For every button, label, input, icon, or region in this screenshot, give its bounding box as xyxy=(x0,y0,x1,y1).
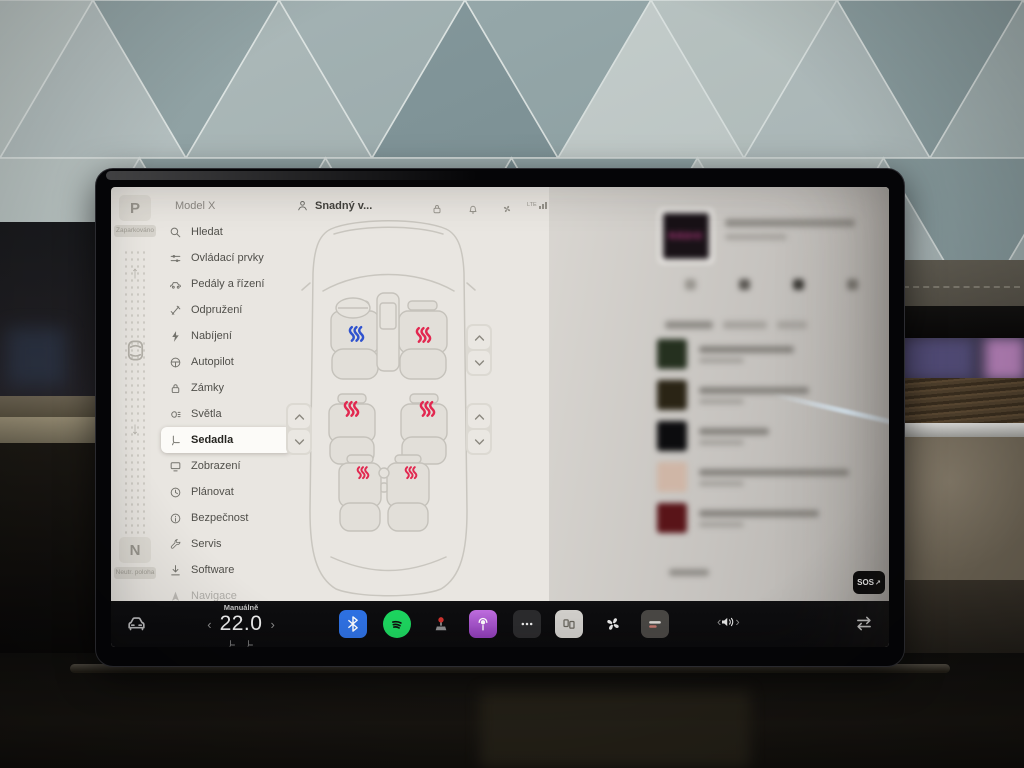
sidebar-item-label: Autopilot xyxy=(191,356,234,368)
software-icon xyxy=(169,564,182,577)
media-item-thumbnail xyxy=(657,421,687,451)
sidebar-item-label: Zobrazení xyxy=(191,460,241,472)
sos-arrow-icon: ↗ xyxy=(875,579,881,587)
media-player-content: RÁDIO xyxy=(549,187,889,601)
sidebar-item-label: Hledat xyxy=(191,226,223,238)
sidebar-item-zamky[interactable]: Zámky xyxy=(161,375,291,401)
seat-fold-control-middle-right xyxy=(466,403,492,455)
media-list-item[interactable] xyxy=(657,503,882,533)
media-list-item[interactable] xyxy=(657,421,882,451)
fan-app-icon[interactable] xyxy=(599,610,627,638)
seat-heater-mini-icon[interactable] xyxy=(245,635,255,644)
suspension-icon xyxy=(169,304,182,317)
car-top-icon xyxy=(124,329,147,371)
seat-up-button[interactable] xyxy=(468,326,490,349)
seat-heater-middle-right[interactable] xyxy=(416,396,438,418)
album-art[interactable]: RÁDIO xyxy=(659,209,713,263)
display-icon xyxy=(169,460,182,473)
lte-label: LTE xyxy=(527,202,537,208)
page-title: Model X xyxy=(175,200,215,212)
media-control-button[interactable] xyxy=(739,279,750,290)
sidebar-item-software[interactable]: Software xyxy=(161,557,291,583)
scene: P Zaparkováno ↑ ↓ N Neutr. poloha Model … xyxy=(0,0,1024,768)
search-icon xyxy=(169,226,182,239)
media-control-button[interactable] xyxy=(685,279,696,290)
sidebar-item-label: Plánovat xyxy=(191,486,234,498)
sidebar-item-sedadla[interactable]: Sedadla xyxy=(161,427,291,453)
sidebar-item-odpruzeni[interactable]: Odpružení xyxy=(161,297,291,323)
arcade-app-icon[interactable] xyxy=(427,610,455,638)
sidebar-item-label: Zámky xyxy=(191,382,224,394)
seat-heater-rear-left[interactable] xyxy=(352,460,374,482)
settings-menu: Hledat Ovládací prvky Pedály a řízení Od… xyxy=(161,219,291,609)
car-outline xyxy=(301,211,476,606)
media-item-thumbnail xyxy=(657,462,687,492)
seat-heater-front-right[interactable] xyxy=(412,322,434,344)
seat-heater-front-left[interactable] xyxy=(345,321,367,343)
center-console xyxy=(480,690,750,768)
seat-up-button[interactable] xyxy=(288,405,310,428)
track-subtitle xyxy=(725,234,787,240)
lock-icon xyxy=(169,382,182,395)
touchscreen-display: P Zaparkováno ↑ ↓ N Neutr. poloha Model … xyxy=(111,187,889,647)
safety-icon xyxy=(169,512,182,525)
temperature-value: 22.0 xyxy=(220,612,263,636)
media-item-text xyxy=(699,510,882,527)
bluetooth-app-icon[interactable] xyxy=(339,610,367,638)
media-list-item[interactable] xyxy=(657,339,882,369)
sidebar-item-label: Servis xyxy=(191,538,222,550)
gear-park-caption: Zaparkováno xyxy=(114,225,156,237)
schedule-icon xyxy=(169,486,182,499)
sidebar-item-planovat[interactable]: Plánovat xyxy=(161,479,291,505)
media-item-thumbnail xyxy=(657,380,687,410)
seat-down-button[interactable] xyxy=(468,351,490,374)
temp-increase-chevron[interactable]: › xyxy=(270,617,274,632)
radio-app-icon[interactable] xyxy=(641,610,669,638)
sos-button[interactable]: SOS ↗ xyxy=(853,571,885,594)
theater-app-icon[interactable] xyxy=(555,610,583,638)
gear-park-indicator[interactable]: P xyxy=(119,195,151,221)
gear-neutral-caption: Neutr. poloha xyxy=(114,567,156,579)
signal-bars-icon xyxy=(539,202,547,209)
sos-label: SOS xyxy=(857,578,874,587)
podcasts-app-icon[interactable] xyxy=(469,610,497,638)
more-apps-icon[interactable] xyxy=(513,610,541,638)
sidebar-item-label: Ovládací prvky xyxy=(191,252,264,264)
fan-icon xyxy=(501,202,513,214)
lte-signal: LTE xyxy=(527,202,547,209)
driver-profile-label: Snadný v... xyxy=(315,200,372,212)
sidebar-item-servis[interactable]: Servis xyxy=(161,531,291,557)
gear-reverse-arrow-icon[interactable]: ↓ xyxy=(125,419,145,439)
media-control-button[interactable] xyxy=(847,279,858,290)
media-item-thumbnail xyxy=(657,503,687,533)
track-title xyxy=(725,219,855,227)
climate-temperature-control[interactable]: Manuálně ‹ 22.0 › xyxy=(189,603,293,644)
seat-diagram xyxy=(301,211,476,606)
media-footer-text xyxy=(669,569,709,576)
cabin-fan-status xyxy=(501,202,513,214)
dashboard-below-screen xyxy=(0,653,1024,768)
speaker-icon[interactable] xyxy=(717,613,739,631)
gear-drive-arrow-icon[interactable]: ↑ xyxy=(125,263,145,283)
sidebar-item-label: Sedadla xyxy=(191,434,233,446)
seat-fold-control-middle-left xyxy=(286,403,312,455)
service-icon xyxy=(169,538,182,551)
sidebar-item-autopilot[interactable]: Autopilot xyxy=(161,349,291,375)
media-player-panel: RÁDIO SOS ↗ xyxy=(549,187,889,601)
climate-mode-label: Manuálně xyxy=(189,603,293,612)
track-swap-icon[interactable] xyxy=(851,613,877,634)
sidebar-item-label: Software xyxy=(191,564,234,576)
charging-icon xyxy=(169,330,182,343)
tesla-center-screen: P Zaparkováno ↑ ↓ N Neutr. poloha Model … xyxy=(95,168,905,667)
seat-up-button[interactable] xyxy=(468,405,490,428)
sidebar-item-label: Světla xyxy=(191,408,222,420)
sidebar-item-bezpecnost[interactable]: Bezpečnost xyxy=(161,505,291,531)
pedals-icon xyxy=(169,278,182,291)
album-art-text: RÁDIO xyxy=(663,213,709,259)
sidebar-item-svetla[interactable]: Světla xyxy=(161,401,291,427)
media-tab[interactable] xyxy=(723,321,767,329)
media-track-list xyxy=(657,339,882,544)
sidebar-item-label: Bezpečnost xyxy=(191,512,248,524)
media-item-text xyxy=(699,469,882,486)
media-item-text xyxy=(699,346,882,363)
car-front-icon[interactable] xyxy=(123,613,150,635)
volume-control: ‹ › xyxy=(717,614,740,629)
steering-wheel-icon xyxy=(169,356,182,369)
bottom-launcher-bar: Manuálně ‹ 22.0 › xyxy=(111,601,889,647)
sidebar-item-label: Odpružení xyxy=(191,304,242,316)
media-list-item[interactable] xyxy=(657,462,882,492)
sidebar-item-nabijeni[interactable]: Nabíjení xyxy=(161,323,291,349)
car-interior-left-lower xyxy=(0,443,97,768)
sidebar-item-hledat[interactable]: Hledat xyxy=(161,219,291,245)
gear-neutral-indicator[interactable]: N xyxy=(119,537,151,563)
car-interior-right-lower xyxy=(899,580,1024,768)
seat-heater-rear-right[interactable] xyxy=(400,460,422,482)
spotify-app-icon[interactable] xyxy=(383,610,411,638)
seat-heater-mini-icon[interactable] xyxy=(227,635,237,644)
lights-icon xyxy=(169,408,182,421)
media-item-thumbnail xyxy=(657,339,687,369)
seat-down-button[interactable] xyxy=(288,430,310,453)
sidebar-item-pedaly-a-rizeni[interactable]: Pedály a řízení xyxy=(161,271,291,297)
temp-decrease-chevron[interactable]: ‹ xyxy=(207,617,211,632)
media-tab[interactable] xyxy=(777,321,807,329)
media-list-item[interactable] xyxy=(657,380,882,410)
sidebar-item-label: Pedály a řízení xyxy=(191,278,264,290)
sidebar-item-zobrazeni[interactable]: Zobrazení xyxy=(161,453,291,479)
seat-heater-middle-left[interactable] xyxy=(340,396,362,418)
controls-icon xyxy=(169,252,182,265)
sidebar-item-label: Nabíjení xyxy=(191,330,232,342)
media-tab[interactable] xyxy=(665,321,713,329)
seat-icon xyxy=(169,434,182,447)
sidebar-item-ovladaci-prvky[interactable]: Ovládací prvky xyxy=(161,245,291,271)
media-control-button[interactable] xyxy=(793,279,804,290)
seat-fold-control-front-right xyxy=(466,324,492,376)
gear-strip-texture xyxy=(123,249,147,537)
seat-down-button[interactable] xyxy=(468,430,490,453)
media-item-text xyxy=(699,428,882,445)
